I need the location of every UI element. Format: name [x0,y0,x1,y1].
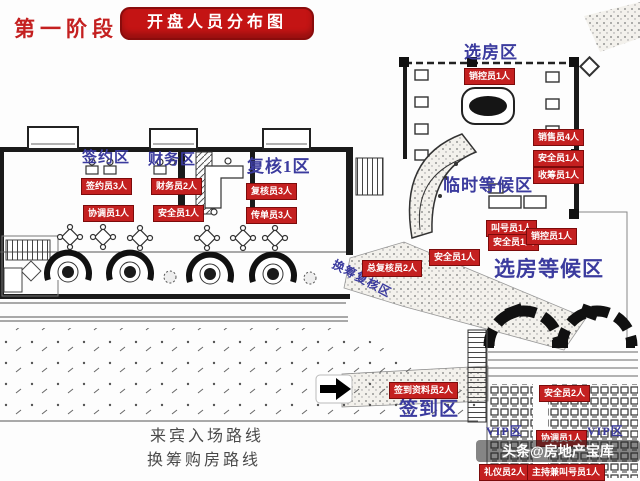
plant [304,272,316,284]
staff-badge: 总复核员2人 [362,260,422,277]
staff-badge: 传单员3人 [246,207,297,224]
tent-road-lines [488,352,638,376]
entrance-arrow [316,375,352,403]
staff-badge: 安全员2人 [539,385,590,402]
zone-label: 选房区 [464,44,518,62]
route-label: 换筹购房路线 [147,446,261,470]
staff-badge: 销控员1人 [464,68,515,85]
staff-badge: 复核员3人 [246,183,297,200]
entry-path-top [584,2,640,52]
zone-label: 临时等候区 [443,177,533,195]
staff-badge: 安全员1人 [533,150,584,167]
staff-badge: 礼仪员2人 [479,464,530,481]
staff-badge: 主持兼叫号员1人 [527,464,605,481]
staff-badge: 收筹员1人 [533,167,584,184]
plant [164,271,176,283]
zone-label: 选房等候区 [494,258,604,280]
staff-badge: 安全员1人 [153,205,204,222]
watermark: 头条@房地产宝库 [476,440,640,462]
staff-badge: 财务员2人 [151,178,202,195]
stairs-bottom [468,330,486,422]
staff-badge: 签到资料员2人 [389,382,458,399]
tables [58,225,288,251]
stairs-middle [356,158,383,195]
zone-label: VIP区 [587,425,624,438]
staff-badge: 协调员1人 [83,205,134,222]
zone-label: VIP区 [486,425,523,438]
title-banner: 开盘人员分布图 [120,7,314,40]
route-label: 来宾入场路线 [150,422,264,446]
zone-label: 签到区 [399,400,459,420]
staff-badge: 销售员4人 [533,129,584,146]
zone-label: 复核1区 [247,158,311,176]
zone-label: 签约区 [82,151,130,167]
slide: 第一阶段 开盘人员分布图 签约区财务区复核1区选房区临时等候区选房等候区换筹复核… [0,0,640,480]
phase-label: 第一阶段 [14,13,118,43]
staff-badge: 签约员3人 [81,178,132,195]
zone-label: 财务区 [148,153,196,169]
staff-badge: 销控员1人 [526,228,577,245]
staff-badge: 安全员1人 [429,249,480,266]
